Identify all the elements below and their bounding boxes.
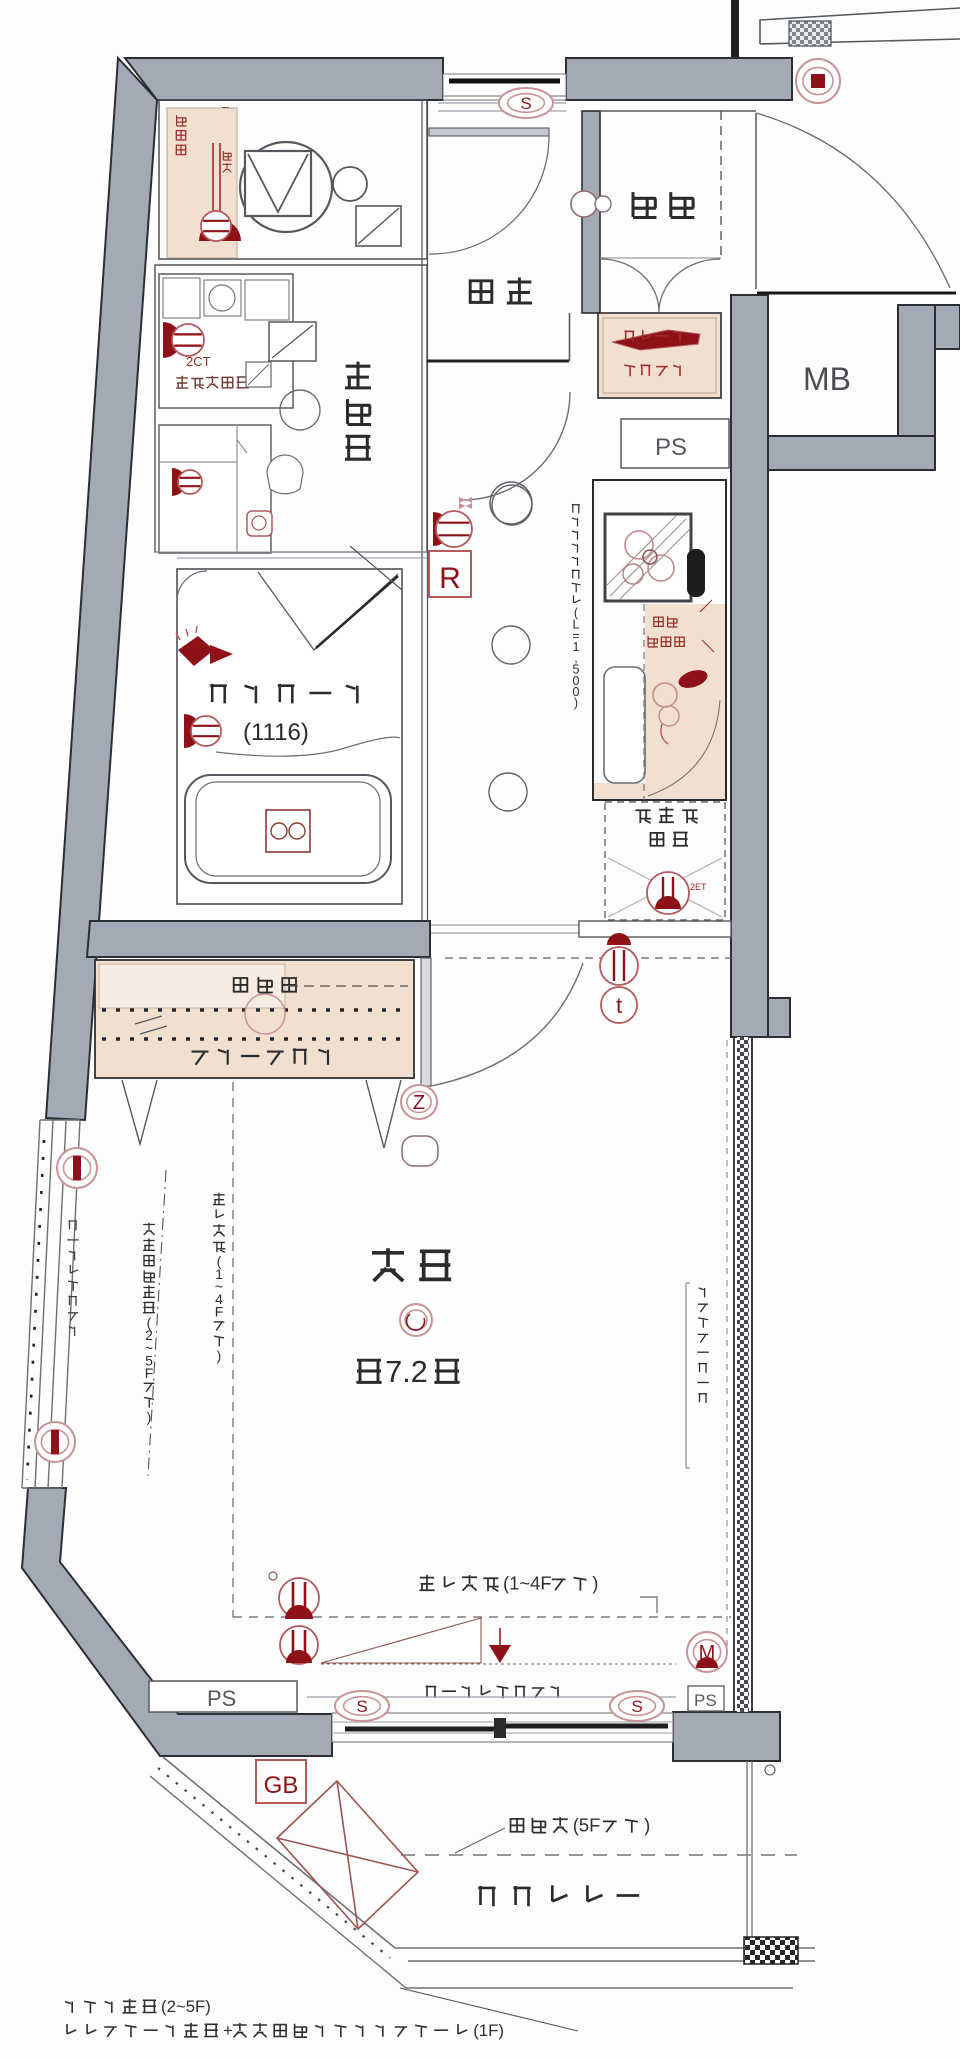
- svg-text:): ): [574, 696, 578, 710]
- svg-text:t: t: [616, 993, 622, 1018]
- svg-text:): ): [644, 1815, 650, 1836]
- svg-text:7.2: 7.2: [385, 1355, 428, 1389]
- svg-text:MB: MB: [803, 361, 851, 397]
- svg-text:(1116): (1116): [243, 719, 309, 746]
- svg-text:PS: PS: [207, 1686, 236, 1711]
- svg-text:(1F): (1F): [473, 2021, 504, 2040]
- svg-text:R: R: [439, 562, 461, 595]
- svg-text:+: +: [223, 2021, 233, 2040]
- svg-text:S: S: [631, 1697, 642, 1716]
- svg-text:(1~4F: (1~4F: [503, 1573, 552, 1594]
- svg-text:): ): [217, 1348, 222, 1364]
- svg-text:Z: Z: [413, 1092, 425, 1114]
- svg-text:PS: PS: [694, 1691, 717, 1710]
- svg-text:PS: PS: [655, 434, 687, 461]
- svg-text:S: S: [356, 1697, 367, 1716]
- svg-text:): ): [147, 1409, 152, 1425]
- svg-text:GB: GB: [264, 1772, 299, 1799]
- svg-text:F: F: [145, 1365, 154, 1381]
- svg-text:2ET: 2ET: [690, 882, 707, 892]
- svg-text:(5F: (5F: [573, 1815, 601, 1836]
- svg-text:F: F: [215, 1304, 224, 1320]
- svg-text:): ): [592, 1573, 598, 1594]
- svg-text:(2~5F): (2~5F): [161, 1997, 211, 2016]
- svg-text:S: S: [520, 94, 531, 113]
- svg-text:2CT: 2CT: [186, 354, 211, 369]
